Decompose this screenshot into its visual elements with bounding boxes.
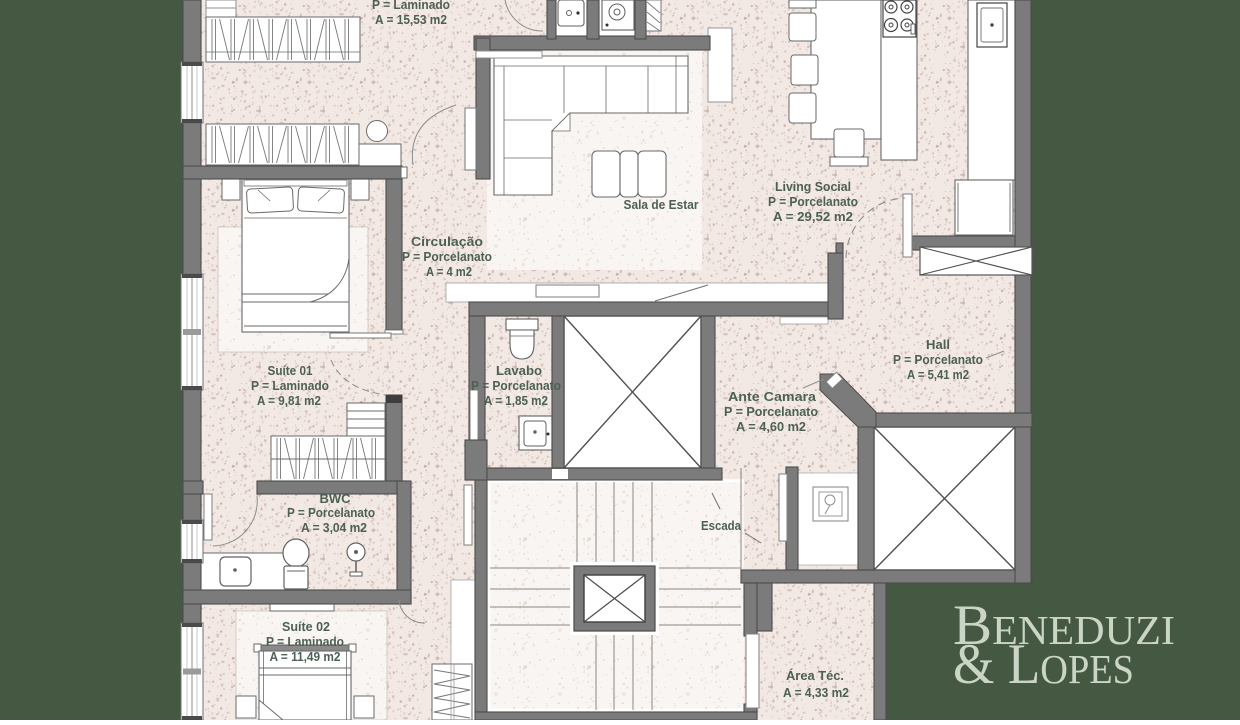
svg-text:P = Porcelanato: P = Porcelanato (893, 353, 983, 367)
svg-text:Escada: Escada (701, 519, 742, 533)
svg-text:P = Porcelanato: P = Porcelanato (287, 506, 375, 520)
svg-text:P = Laminado: P = Laminado (266, 635, 344, 649)
svg-text:P = Laminado: P = Laminado (372, 0, 450, 12)
svg-text:Sala de Estar: Sala de Estar (624, 198, 699, 212)
svg-text:A = 4,60 m2: A = 4,60 m2 (736, 420, 806, 434)
svg-text:P = Porcelanato: P = Porcelanato (471, 379, 561, 393)
svg-text:A = 3,04 m2: A = 3,04 m2 (301, 521, 367, 535)
svg-text:P = Porcelanato: P = Porcelanato (402, 250, 492, 264)
svg-text:P = Laminado: P = Laminado (251, 379, 329, 393)
svg-text:A = 5,41 m2: A = 5,41 m2 (907, 368, 969, 382)
svg-text:A = 29,52 m2: A = 29,52 m2 (773, 210, 853, 224)
svg-text:Suíte 02: Suíte 02 (282, 620, 330, 634)
svg-text:A = 4 m2: A = 4 m2 (426, 265, 472, 279)
svg-text:A = 11,49 m2: A = 11,49 m2 (270, 650, 341, 664)
svg-text:A = 15,53 m2: A = 15,53 m2 (375, 13, 447, 27)
svg-text:P = Porcelanato: P = Porcelanato (768, 195, 858, 209)
svg-text:Living Social: Living Social (775, 180, 851, 194)
svg-text:Área Téc.: Área Téc. (786, 668, 844, 683)
svg-text:Suíte 01: Suíte 01 (268, 364, 313, 378)
svg-text:Circulação: Circulação (411, 235, 483, 249)
svg-text:BWC: BWC (320, 492, 351, 506)
svg-text:A = 4,33 m2: A = 4,33 m2 (783, 686, 849, 700)
svg-text:Lavabo: Lavabo (496, 364, 542, 378)
svg-text:A = 1,85 m2: A = 1,85 m2 (484, 394, 548, 408)
svg-text:Hall: Hall (926, 338, 950, 352)
svg-text:P = Porcelanato: P = Porcelanato (724, 405, 818, 419)
svg-text:A = 9,81 m2: A = 9,81 m2 (257, 394, 321, 408)
svg-text:Ante Camara: Ante Camara (728, 390, 817, 404)
